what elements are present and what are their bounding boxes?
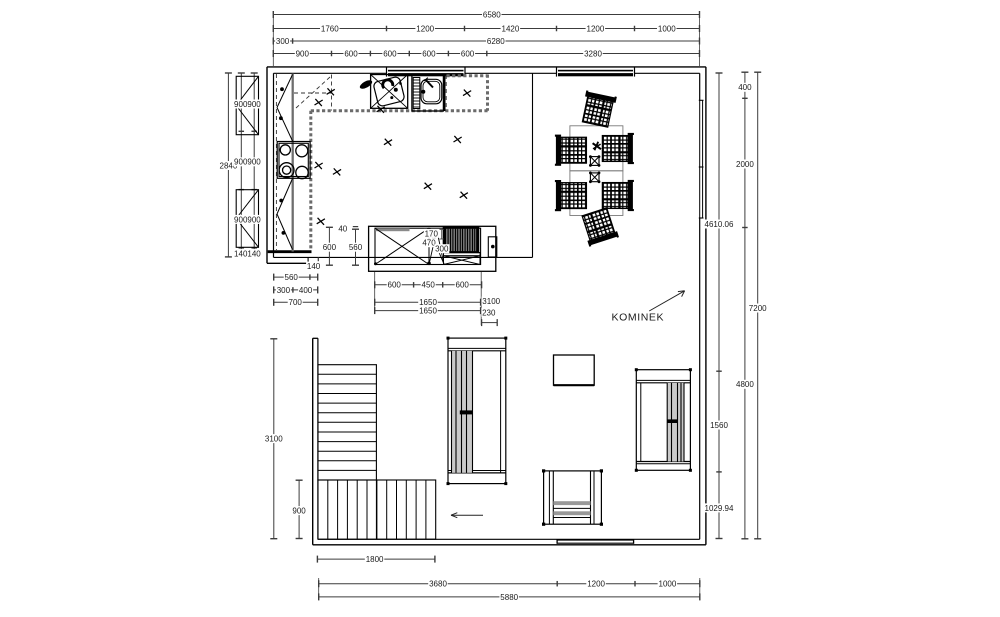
svg-text:1200: 1200	[587, 580, 605, 589]
svg-text:300: 300	[435, 245, 449, 254]
svg-text:2000: 2000	[736, 160, 754, 169]
svg-text:6580: 6580	[483, 10, 501, 19]
svg-text:7200: 7200	[749, 304, 767, 313]
svg-text:900900: 900900	[234, 215, 261, 224]
svg-text:1420: 1420	[502, 24, 520, 33]
svg-text:4610.06: 4610.06	[705, 220, 734, 229]
svg-text:700: 700	[289, 298, 303, 307]
svg-text:1560: 1560	[710, 421, 728, 430]
svg-text:3100: 3100	[265, 435, 283, 444]
svg-text:560: 560	[349, 243, 363, 252]
svg-text:600: 600	[344, 49, 358, 58]
svg-text:4800: 4800	[736, 380, 754, 389]
svg-text:560: 560	[285, 273, 299, 282]
svg-text:600: 600	[461, 49, 475, 58]
svg-text:900: 900	[296, 49, 310, 58]
svg-text:1200: 1200	[416, 24, 434, 33]
svg-text:1200: 1200	[587, 24, 605, 33]
svg-text:900: 900	[292, 507, 306, 516]
svg-text:400: 400	[299, 286, 313, 295]
svg-text:1760: 1760	[321, 24, 339, 33]
svg-text:5880: 5880	[500, 593, 518, 602]
svg-text:450: 450	[422, 281, 436, 290]
svg-text:900900: 900900	[234, 100, 261, 109]
svg-text:600: 600	[323, 243, 337, 252]
svg-text:6280: 6280	[487, 37, 505, 46]
svg-text:300: 300	[277, 286, 291, 295]
svg-text:1000: 1000	[658, 24, 676, 33]
svg-text:300: 300	[276, 37, 290, 46]
svg-text:KOMINEK: KOMINEK	[611, 311, 664, 323]
svg-text:140: 140	[307, 262, 321, 271]
svg-text:600: 600	[422, 49, 436, 58]
svg-text:140140: 140140	[234, 250, 261, 259]
svg-text:1650: 1650	[419, 307, 437, 316]
svg-text:3680: 3680	[429, 580, 447, 589]
svg-text:1800: 1800	[366, 555, 384, 564]
svg-text:40: 40	[338, 225, 347, 234]
svg-text:1029.94: 1029.94	[705, 504, 734, 513]
svg-text:400: 400	[738, 83, 752, 92]
svg-text:600: 600	[456, 281, 470, 290]
svg-text:900900: 900900	[234, 158, 261, 167]
svg-text:600: 600	[388, 281, 402, 290]
svg-text:170: 170	[425, 229, 439, 238]
svg-text:1000: 1000	[659, 580, 677, 589]
svg-text:600: 600	[383, 49, 397, 58]
svg-text:230: 230	[482, 308, 496, 317]
svg-text:3280: 3280	[584, 49, 602, 58]
svg-text:3100: 3100	[482, 297, 500, 306]
